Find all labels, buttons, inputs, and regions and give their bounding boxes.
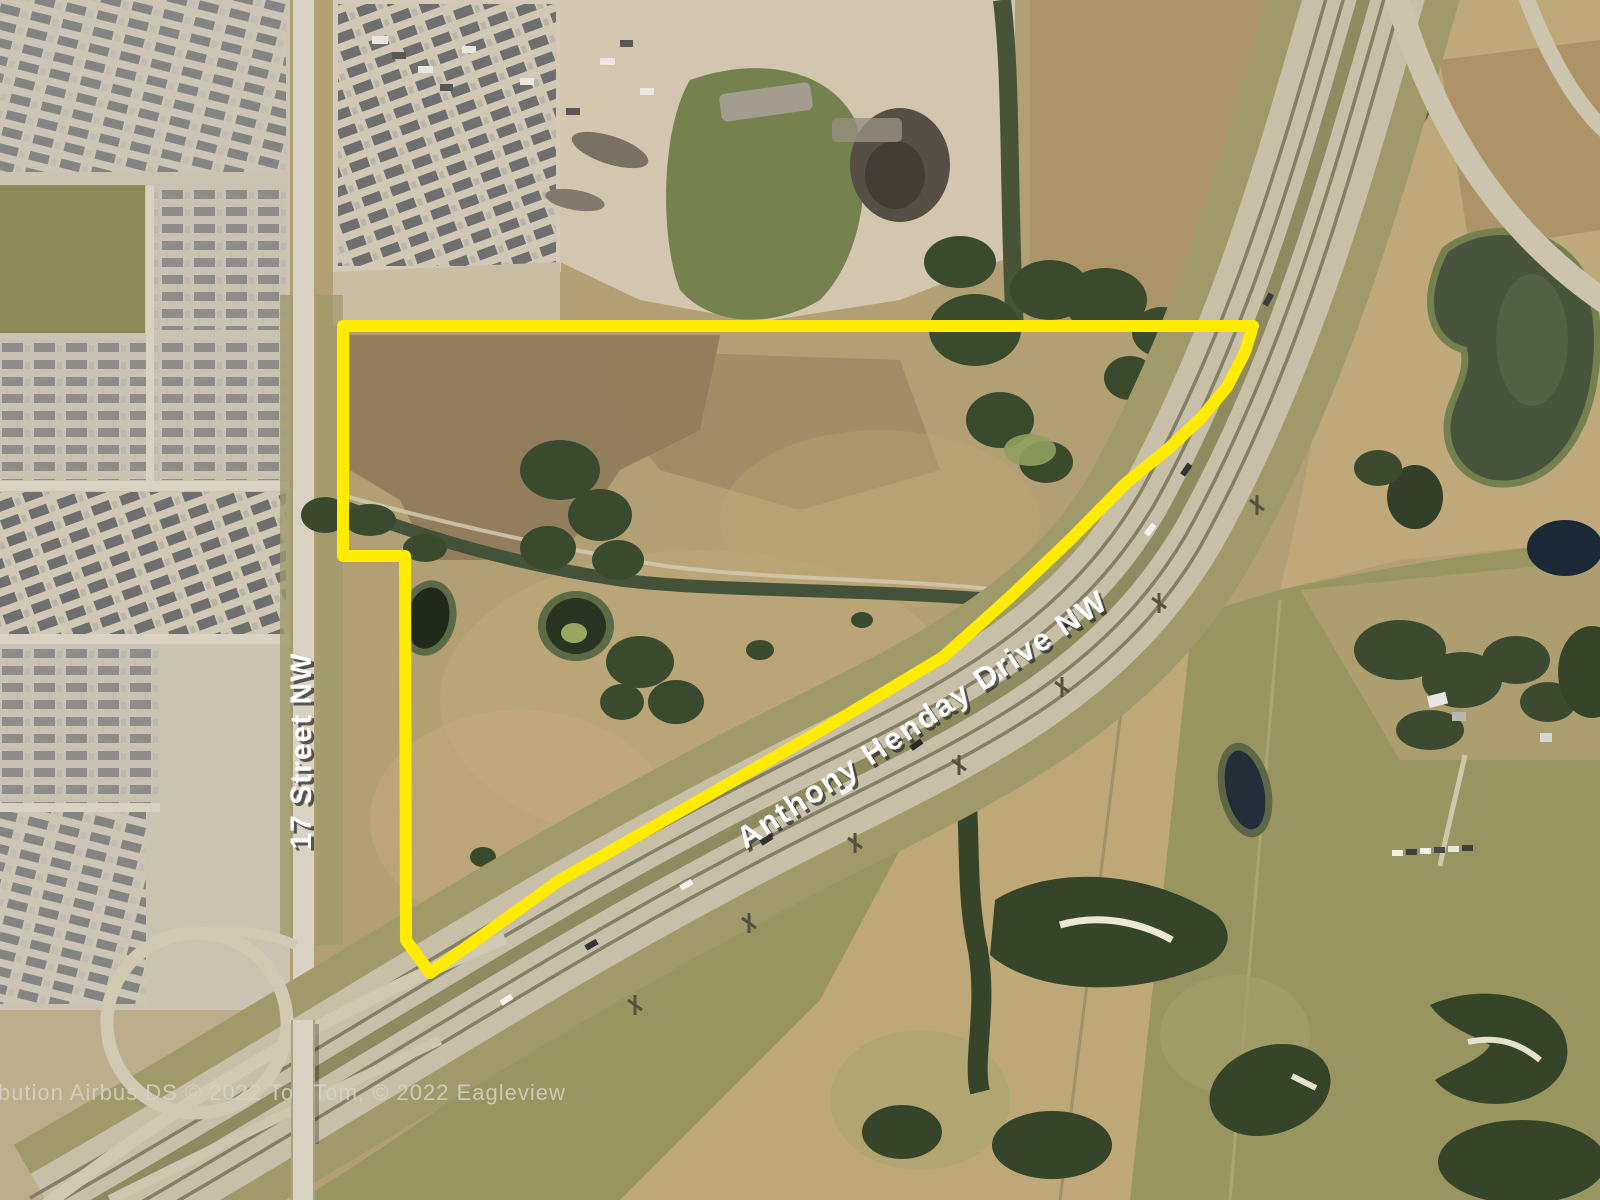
street-label: 17 Street NW bbox=[285, 652, 318, 849]
map-attribution: ibution Airbus DS © 2022 TomTom, © 2022 … bbox=[0, 1080, 566, 1105]
satellite-map[interactable]: 17 Street NW 17 Street NW Anthony Henday… bbox=[0, 0, 1600, 1200]
